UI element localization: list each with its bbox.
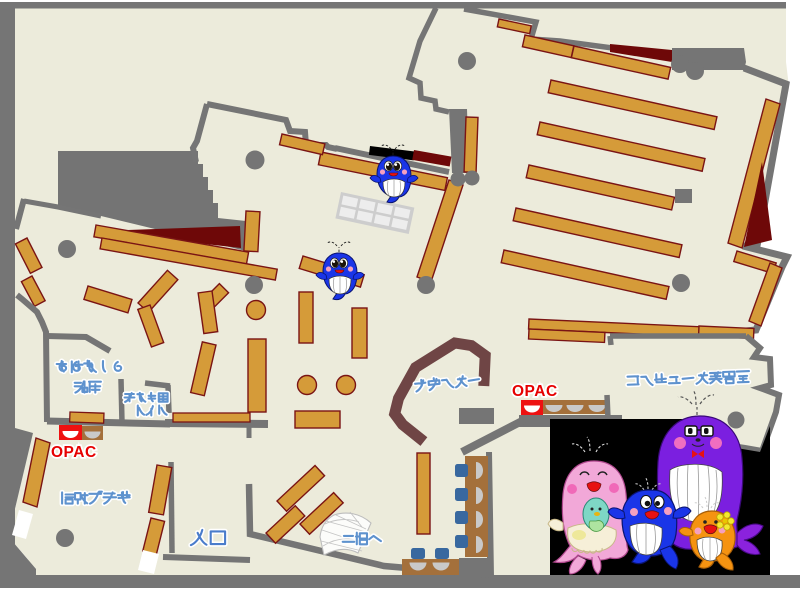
svg-text:OPAC: OPAC (51, 444, 97, 461)
svg-text:OPAC: OPAC (512, 383, 558, 400)
